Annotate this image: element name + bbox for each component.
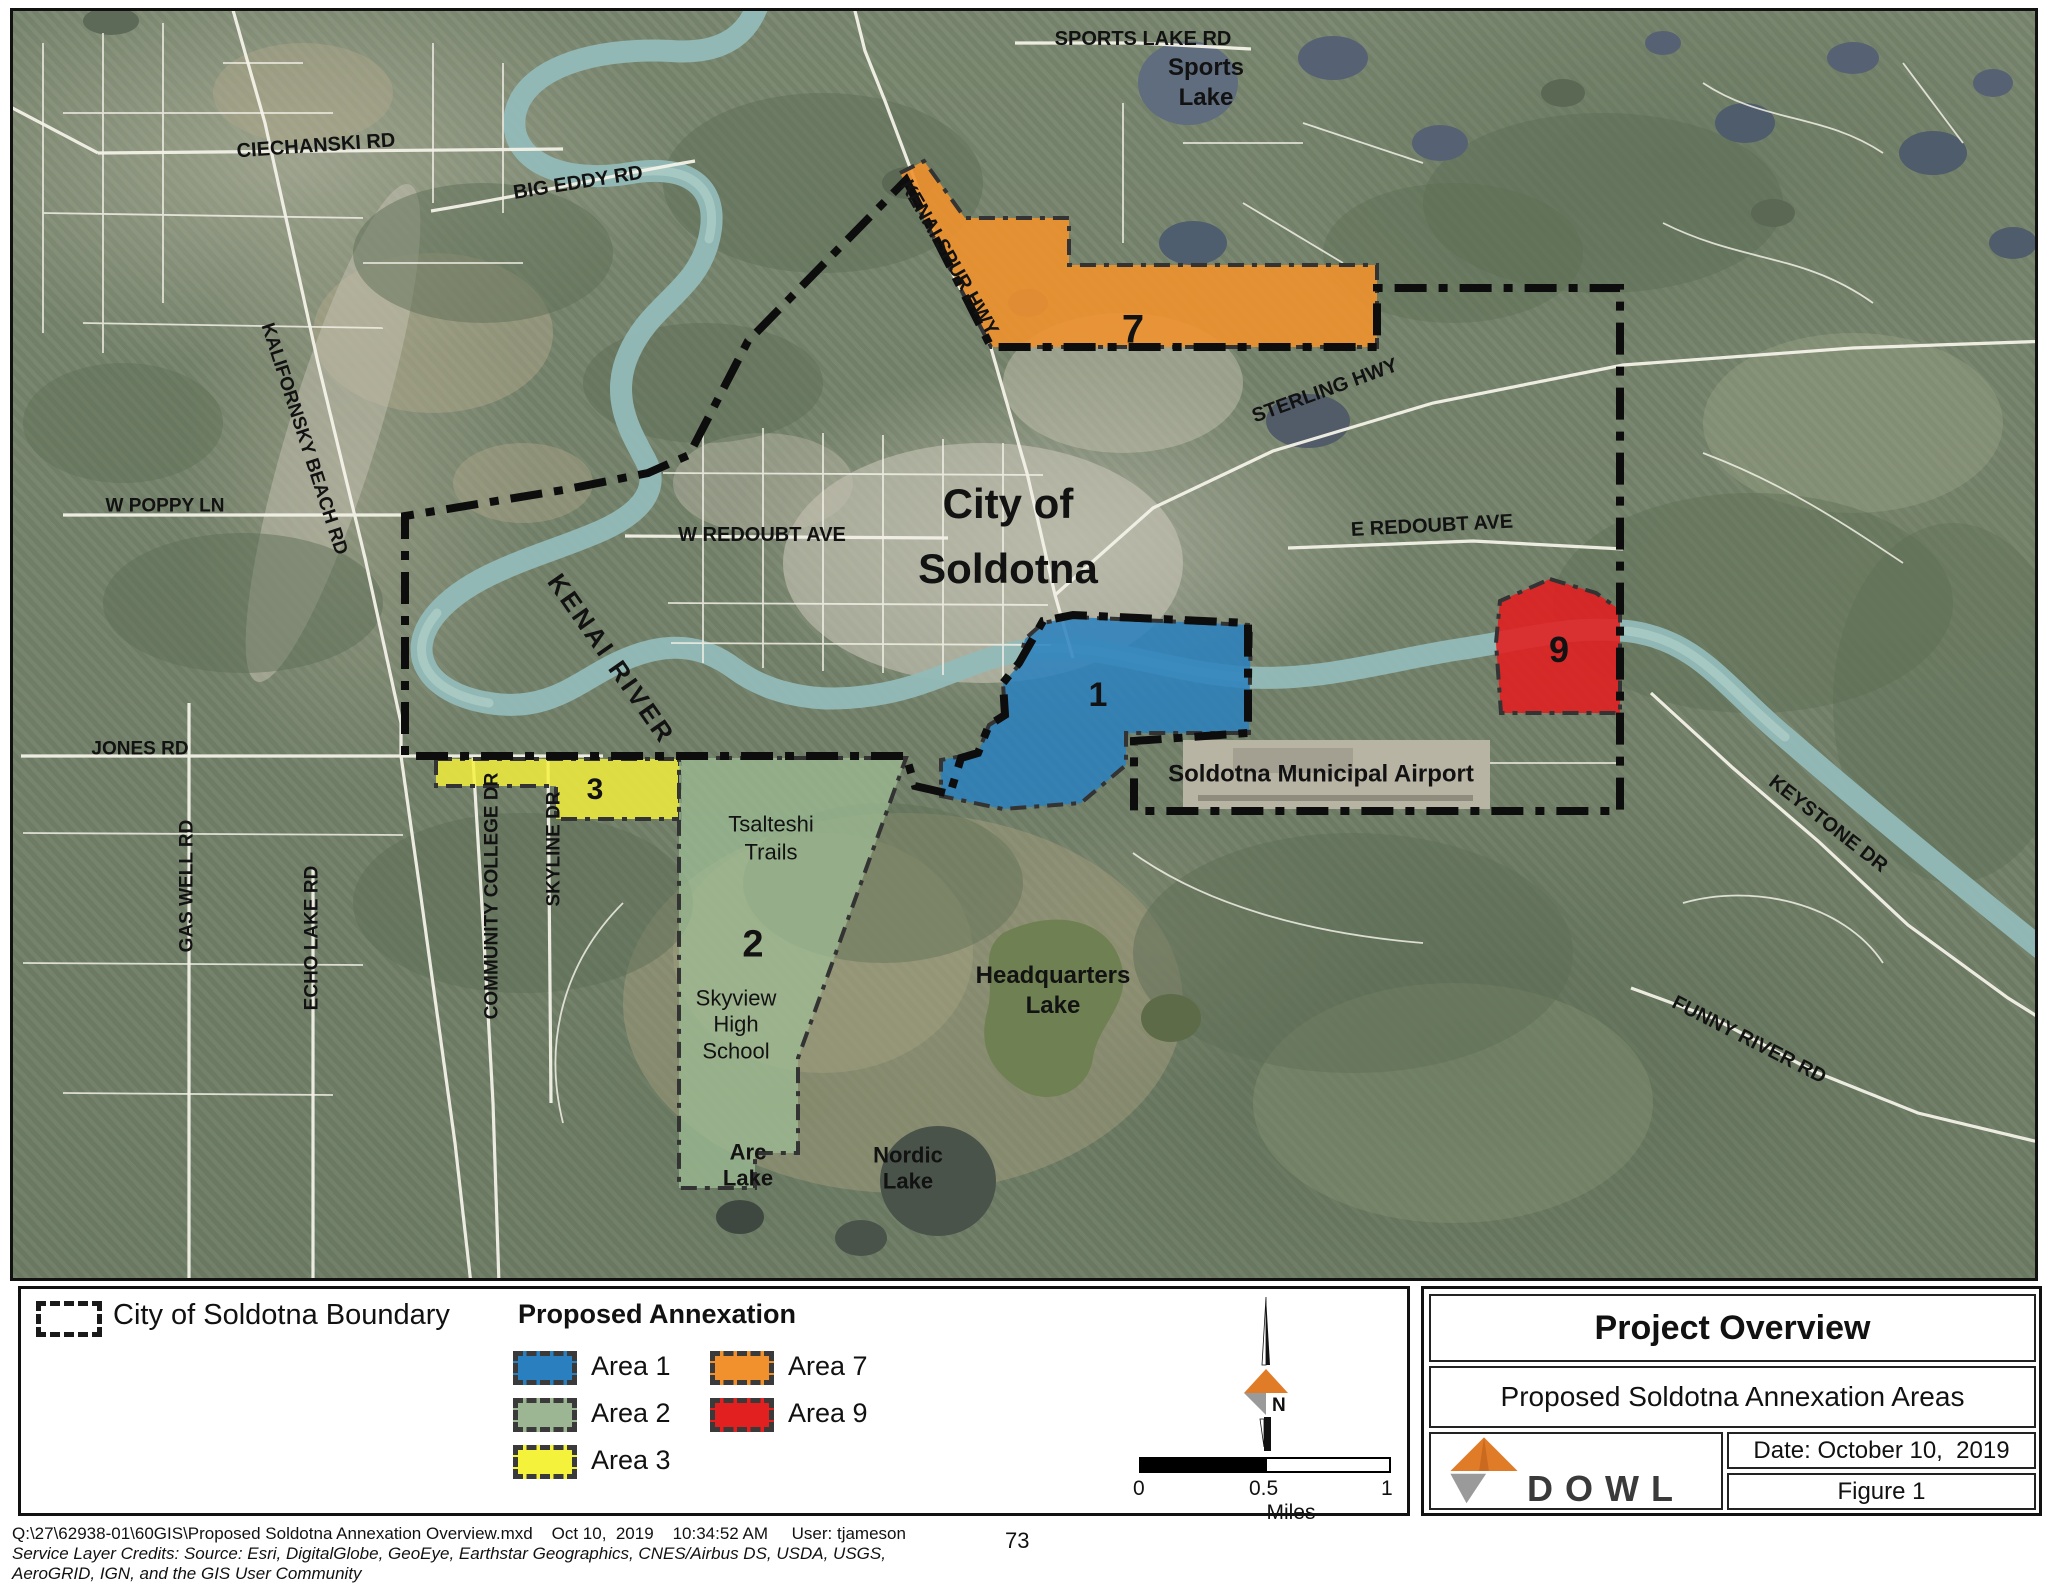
area-1-label: Area 1 xyxy=(591,1351,671,1382)
area-9-swatch xyxy=(710,1398,774,1432)
figure-number-cell: Figure 1 xyxy=(1727,1473,2036,1510)
label-headquarters-lake: Headquarters Lake xyxy=(976,961,1131,1021)
label-gas-well-rd: GAS WELL RD xyxy=(176,820,197,953)
figure-subtitle: Proposed Soldotna Annexation Areas xyxy=(1429,1366,2036,1428)
area-2-label: Area 2 xyxy=(591,1398,671,1429)
label-area-7-number: 7 xyxy=(1122,308,1144,353)
figure-title: Project Overview xyxy=(1429,1294,2036,1362)
scalebar-unit: Miles xyxy=(1211,1501,1371,1525)
legend-panel: City of Soldotna Boundary Proposed Annex… xyxy=(18,1286,1410,1516)
label-soldotna-municipal-airport: Soldotna Municipal Airport xyxy=(1168,762,1474,789)
north-arrow: N xyxy=(1233,1293,1303,1455)
area-1-swatch xyxy=(513,1351,577,1385)
label-echo-lake-rd: ECHO LAKE RD xyxy=(301,866,322,1011)
label-tsalteshi-trails: Tsalteshi Trails xyxy=(728,811,814,866)
dowl-logo: DOWL xyxy=(1429,1432,1723,1510)
label-area-3-number: 3 xyxy=(587,773,604,807)
label-kalifornsky-beach-rd: KALIFORNSKY BEACH RD xyxy=(256,320,351,557)
label-funny-river-rd: FUNNY RIVER RD xyxy=(1668,992,1829,1089)
label-ciechanski-rd: CIECHANSKI RD xyxy=(236,129,396,162)
title-block: Project Overview Proposed Soldotna Annex… xyxy=(1421,1286,2042,1516)
page-number: 73 xyxy=(1005,1528,1029,1554)
scalebar-left-segment xyxy=(1139,1457,1267,1473)
service-credits-line2: AeroGRID, IGN, and the GIS User Communit… xyxy=(12,1564,362,1584)
label-arc-lake: Arc Lake xyxy=(723,1140,773,1193)
label-keystone-dr: KEYSTONE DR xyxy=(1764,771,1891,877)
city-boundary-label: City of Soldotna Boundary xyxy=(113,1299,450,1332)
area-7-label: Area 7 xyxy=(788,1351,868,1382)
label-jones-rd: JONES RD xyxy=(91,738,188,759)
label-w-poppy-ln: W POPPY LN xyxy=(106,495,225,516)
label-w-redoubt-ave: W REDOUBT AVE xyxy=(678,524,846,546)
service-credits-line1: Service Layer Credits: Source: Esri, Dig… xyxy=(12,1544,886,1564)
scalebar-half: 0.5 xyxy=(1249,1477,1278,1501)
label-nordic-lake: Nordic Lake xyxy=(873,1143,943,1196)
map-labels: SPORTS LAKE RDSports LakeCIECHANSKI RDBI… xyxy=(13,11,2035,1278)
dowl-logo-text: DOWL xyxy=(1527,1468,1685,1510)
area-2-swatch xyxy=(513,1398,577,1432)
map-figure: SPORTS LAKE RDSports LakeCIECHANSKI RDBI… xyxy=(0,0,2048,1585)
scalebar-one: 1 xyxy=(1381,1477,1393,1501)
area-3-label: Area 3 xyxy=(591,1445,671,1476)
dowl-logo-icon xyxy=(1439,1436,1529,1506)
label-big-eddy-rd: BIG EDDY RD xyxy=(512,162,645,205)
scalebar-right-segment xyxy=(1265,1457,1391,1473)
map-canvas: SPORTS LAKE RDSports LakeCIECHANSKI RDBI… xyxy=(10,8,2038,1281)
label-city-of-soldotna: City of Soldotna xyxy=(918,471,1098,601)
label-sterling-hwy: STERLING HWY xyxy=(1249,354,1401,427)
label-kenai-river: KENAI RIVER xyxy=(542,568,681,749)
area-7-swatch xyxy=(710,1351,774,1385)
label-e-redoubt-ave: E REDOUBT AVE xyxy=(1350,511,1513,542)
label-community-college-dr: COMMUNITY COLLEGE DR xyxy=(481,773,502,1020)
label-area-2-number: 2 xyxy=(742,924,763,967)
label-sports-lake: Sports Lake xyxy=(1168,53,1244,113)
label-area-9-number: 9 xyxy=(1549,630,1569,670)
label-skyview-high-school: Skyview High School xyxy=(696,985,777,1064)
date-cell: Date: October 10, 2019 xyxy=(1727,1432,2036,1469)
label-kenai-spur-hwy: KENAI SPUR HWY xyxy=(895,176,1002,339)
city-boundary-swatch xyxy=(36,1301,102,1337)
scalebar-zero: 0 xyxy=(1133,1477,1145,1501)
area-9-label: Area 9 xyxy=(788,1398,868,1429)
area-3-swatch xyxy=(513,1445,577,1479)
label-sports-lake-rd: SPORTS LAKE RD xyxy=(1055,28,1232,50)
proposed-annexation-title: Proposed Annexation xyxy=(518,1299,796,1330)
label-area-1-number: 1 xyxy=(1089,676,1108,714)
north-letter: N xyxy=(1272,1395,1286,1416)
footer-filepath: Q:\27\62938-01\60GIS\Proposed Soldotna A… xyxy=(12,1524,906,1544)
label-skyline-dr: SKYLINE DR xyxy=(543,791,564,906)
